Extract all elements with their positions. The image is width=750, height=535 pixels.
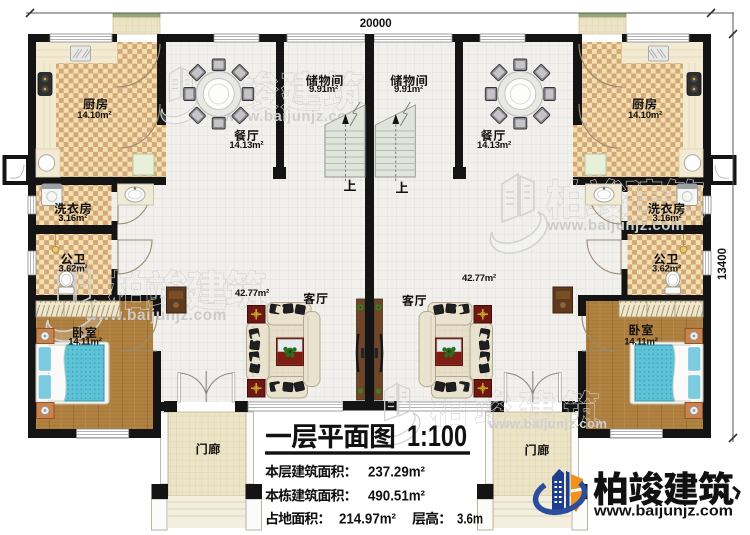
- svg-text:www.baijunjz.com: www.baijunjz.com: [593, 504, 733, 520]
- svg-text:237.29m²: 237.29m²: [368, 465, 425, 481]
- svg-text:13400: 13400: [717, 248, 729, 280]
- svg-text:42.77m²: 42.77m²: [235, 288, 269, 299]
- svg-text:490.51m²: 490.51m²: [368, 489, 425, 505]
- svg-text:3.6m: 3.6m: [457, 512, 483, 528]
- svg-text:14.10m²: 14.10m²: [77, 110, 111, 121]
- svg-text:14.11m²: 14.11m²: [68, 337, 101, 348]
- svg-text:14.13m²: 14.13m²: [229, 140, 263, 151]
- svg-text:9.91m²: 9.91m²: [394, 84, 423, 95]
- svg-text:3.16m²: 3.16m²: [58, 213, 87, 224]
- svg-text:14.10m²: 14.10m²: [628, 110, 662, 121]
- svg-text:14.13m²: 14.13m²: [477, 140, 511, 151]
- svg-text:www.baijunjz.com: www.baijunjz.com: [488, 416, 608, 431]
- svg-text:214.97m²: 214.97m²: [339, 512, 396, 528]
- svg-text:3.62m²: 3.62m²: [59, 264, 88, 275]
- svg-text:3.62m²: 3.62m²: [652, 264, 681, 275]
- svg-text:20000: 20000: [360, 18, 392, 30]
- svg-text:3.16m²: 3.16m²: [653, 213, 682, 224]
- svg-text:14.11m²: 14.11m²: [624, 337, 657, 348]
- svg-text:42.77m²: 42.77m²: [462, 273, 496, 284]
- svg-text:1:100: 1:100: [407, 420, 467, 453]
- svg-text:9.91m²: 9.91m²: [309, 84, 338, 95]
